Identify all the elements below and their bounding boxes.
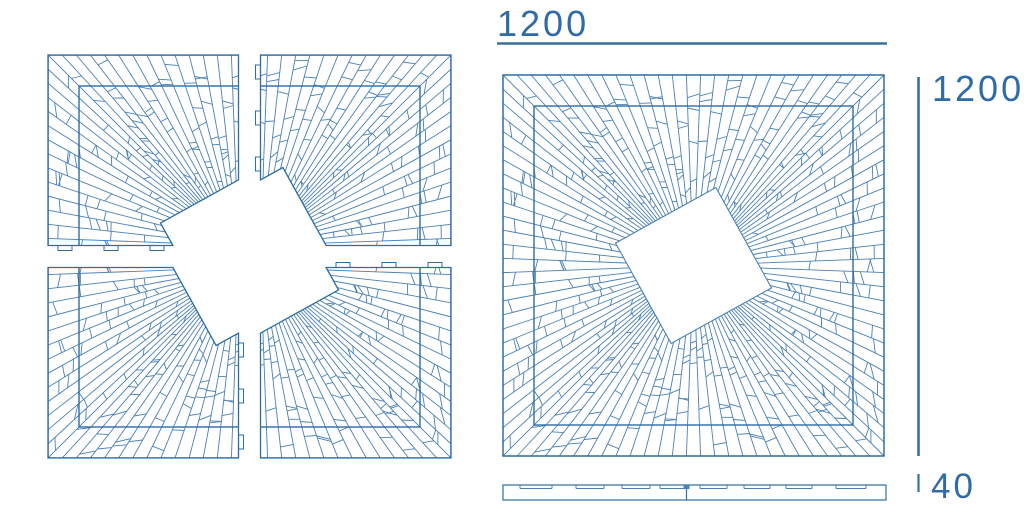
thickness-dimension-label: 40 [931, 467, 976, 506]
technical-drawing: 1200 1200 40 [0, 0, 1024, 518]
tongue-tab [239, 343, 244, 357]
tongue-tab [104, 246, 118, 251]
tongue-tab [382, 263, 396, 268]
profile-outline [503, 485, 886, 500]
tongue-tab [150, 246, 164, 251]
tongue-tab [256, 111, 261, 125]
tongue-tab [239, 389, 244, 403]
tongue-tab [239, 435, 244, 449]
assembled-view [503, 75, 884, 456]
tongue-tab [336, 263, 350, 268]
side-profile-view [503, 485, 886, 500]
tongue-tab [256, 157, 261, 171]
tongue-tab [256, 65, 261, 79]
drawing-canvas: 1200 1200 40 [0, 0, 1024, 518]
height-dimension-label: 1200 [932, 68, 1024, 109]
width-dimension-label: 1200 [497, 3, 589, 44]
tongue-tab [58, 246, 72, 251]
profile-tongue [684, 485, 690, 489]
exploded-view [48, 55, 451, 458]
tongue-tab [428, 263, 442, 268]
